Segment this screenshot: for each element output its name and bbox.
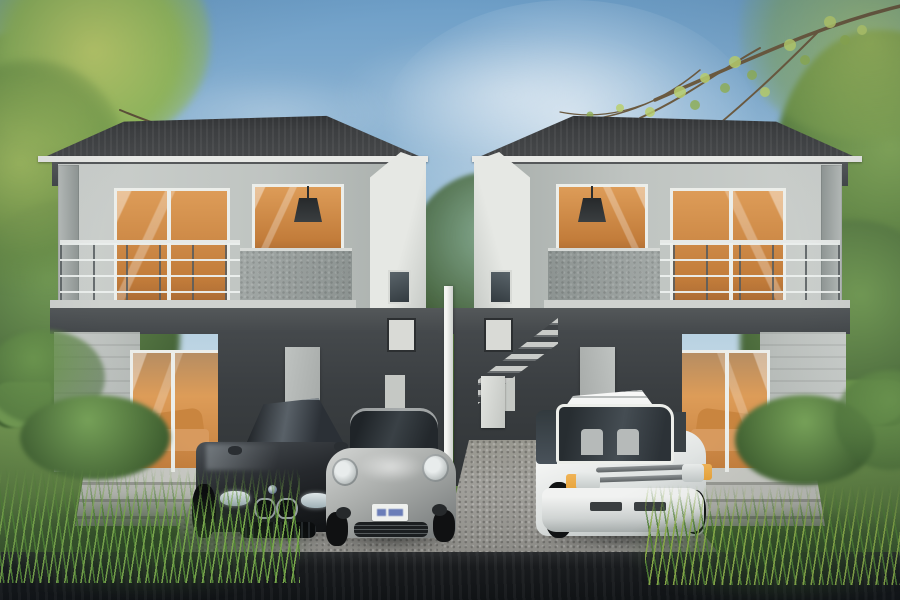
roof-shingles: [472, 112, 862, 160]
staircase-door: [481, 376, 505, 428]
glass-door-mullion: [725, 352, 729, 472]
hip-roof: [472, 112, 862, 160]
ornamental-grass-right: [645, 485, 900, 585]
inner-corner-wall: [370, 152, 426, 334]
van-headlight: [682, 464, 704, 482]
round-headlight: [422, 454, 449, 482]
floor-slab-edge: [50, 300, 356, 308]
van-seat: [581, 429, 603, 455]
round-headlight: [332, 458, 358, 486]
hood-reflection: [206, 444, 302, 470]
small-side-window: [388, 270, 411, 304]
van-windshield: [556, 404, 674, 464]
roof-shingles: [38, 112, 428, 160]
inner-corner-wall: [474, 152, 530, 334]
small-side-window: [489, 270, 512, 304]
side-mirror: [228, 446, 242, 455]
ornamental-grass-left: [0, 468, 300, 583]
glass-door-mullion: [171, 352, 175, 472]
hood-reflection: [356, 452, 426, 482]
roof-rail: [564, 396, 674, 398]
small-window: [484, 318, 513, 352]
side-door: [385, 375, 405, 411]
hip-roof: [38, 112, 428, 160]
van-seat: [617, 429, 639, 455]
pendant-lamp-cord: [591, 186, 593, 199]
fog-light: [336, 507, 351, 519]
roof-rail: [564, 390, 674, 392]
architectural-render: [0, 0, 900, 600]
bumper-intake: [354, 522, 428, 537]
small-window: [387, 318, 416, 352]
fog-light: [432, 504, 447, 516]
silver-sports-car: [326, 408, 456, 550]
license-plate-characters: [377, 509, 403, 516]
license-plate: [372, 504, 408, 521]
van-side-window: [536, 410, 557, 464]
bumper-slot: [590, 502, 622, 511]
floor-slab-edge: [544, 300, 850, 308]
pendant-lamp-cord: [307, 186, 309, 199]
